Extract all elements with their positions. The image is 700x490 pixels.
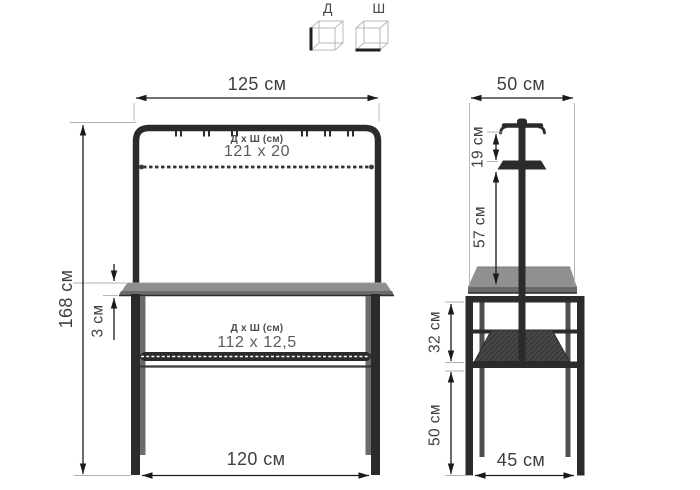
upper-mesh-shelf (139, 165, 374, 170)
front-top-width-label: 125 см (228, 75, 287, 93)
small-top-shelf (498, 161, 547, 170)
dimension-diagram: Д Ш 125 см Д x Ш (см) 121 x 20 168 см 3 … (0, 0, 700, 490)
lower-mesh-shelf (137, 352, 374, 367)
width-icon-label: Ш (372, 1, 385, 15)
hooks-to-shelf-label: 19 см (470, 126, 486, 168)
front-tabletop (119, 283, 394, 296)
shelf-to-tabletop-label: 57 см (472, 206, 488, 248)
front-view-drawing (119, 128, 394, 475)
lower-shelf-size: 112 x 12,5 (217, 335, 297, 351)
side-bottom-depth-label: 45 см (497, 451, 545, 469)
furniture-line-drawing (0, 0, 700, 490)
front-bottom-width-label: 120 см (227, 450, 286, 468)
side-top-depth-label: 50 см (497, 75, 545, 93)
tabletop-to-shelf-label: 32 см (427, 311, 443, 353)
lower-shelf-title: Д x Ш (см) (231, 324, 284, 334)
side-view-drawing (466, 119, 585, 476)
overall-height-label: 168 см (57, 270, 75, 329)
width-cube-icon (356, 21, 389, 50)
lower-height-label: 50 см (427, 404, 443, 446)
front-legs (131, 294, 380, 475)
upper-shelf-size: 121 x 20 (224, 144, 290, 160)
tabletop-thickness-label: 3 см (90, 305, 106, 338)
length-cube-icon (311, 21, 343, 51)
length-icon-label: Д (323, 1, 333, 15)
